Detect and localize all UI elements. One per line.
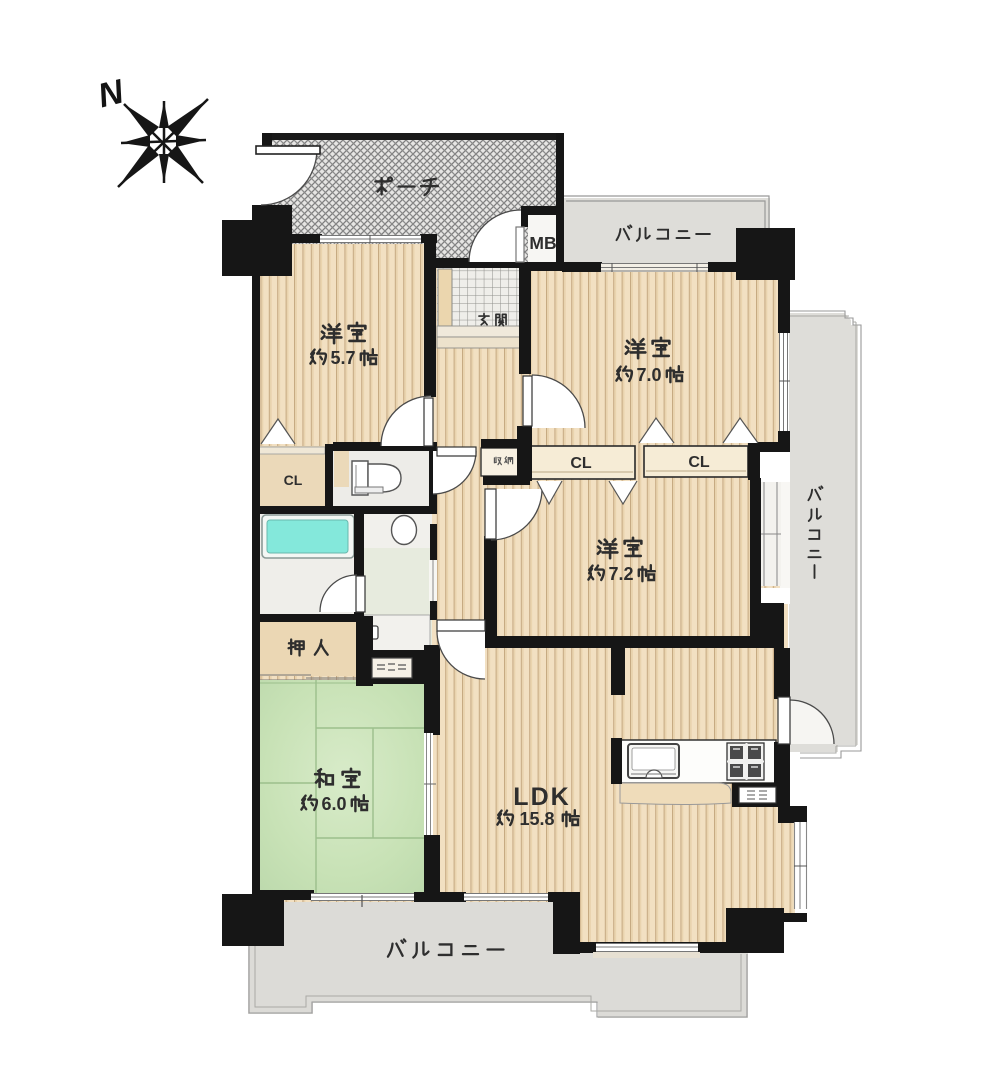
svg-text:6.0: 6.0 bbox=[321, 794, 346, 814]
svg-text:CL: CL bbox=[284, 472, 303, 488]
svg-text:7.0: 7.0 bbox=[636, 365, 661, 385]
svg-text:CL: CL bbox=[570, 455, 592, 472]
svg-text:7.2: 7.2 bbox=[608, 564, 633, 584]
svg-text:CL: CL bbox=[688, 454, 710, 471]
svg-text:MB: MB bbox=[529, 233, 556, 253]
svg-text:5.7: 5.7 bbox=[330, 348, 355, 368]
svg-text:15.8: 15.8 bbox=[519, 809, 554, 829]
svg-text:LDK: LDK bbox=[513, 783, 570, 811]
